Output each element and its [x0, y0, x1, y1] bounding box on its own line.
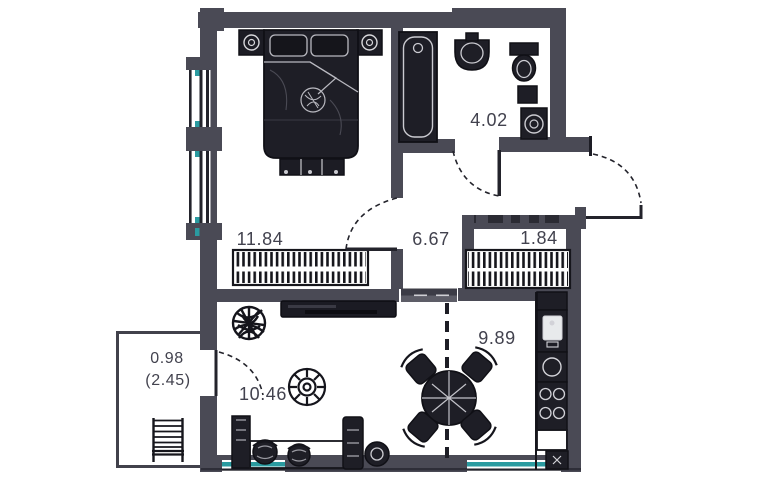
svg-text:1.84: 1.84 — [520, 228, 557, 248]
svg-text:10.46: 10.46 — [239, 384, 287, 404]
svg-text:0.98: 0.98 — [150, 350, 184, 367]
svg-text:6.67: 6.67 — [412, 229, 449, 249]
svg-text:9.89: 9.89 — [478, 328, 515, 348]
svg-text:4.02: 4.02 — [470, 110, 507, 130]
svg-text:11.84: 11.84 — [237, 229, 284, 249]
svg-text:(2.45): (2.45) — [145, 372, 190, 389]
